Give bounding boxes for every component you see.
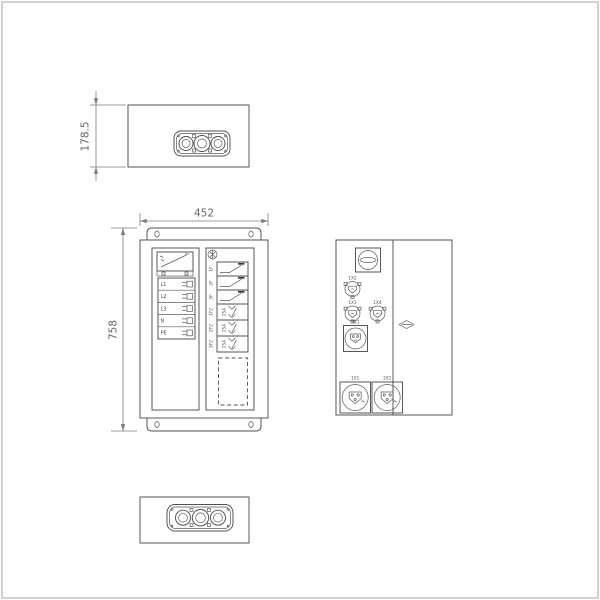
breaker-label: 1F [209,266,215,272]
gland-plate-outline [167,505,233,532]
screw-icon [185,272,188,275]
terminal-connector-icon [182,330,193,336]
arrowhead-icon [121,424,125,431]
socket-label: 1X4 [373,300,382,305]
breaker-symbol-icon: 25A [222,306,237,318]
socket-pin-icon [389,394,391,396]
terminal-block: L1 L2 L3 N [158,278,195,339]
mid-socket: 3X1 [344,320,368,352]
screw-icon [171,509,173,511]
mounting-hole [249,231,253,237]
screw-icon [227,509,229,511]
screw-icon [227,525,229,527]
gland-hole-left [179,137,193,151]
terminal-label: L2 [161,294,167,300]
breaker-label: 2F [209,280,215,286]
meter-needle [161,255,187,267]
mounting-flange-bottom [147,418,261,431]
arrowhead-icon [121,228,125,235]
switch-symbol-icon [220,292,245,301]
gland-hole-left-inner [182,140,190,148]
socket-pin-icon [383,394,385,396]
socket-face-icon [351,334,361,343]
terminal-connector-icon [182,318,193,324]
voltmeter [157,252,193,276]
socket-face-icon [349,286,357,293]
gland-hole-right [211,510,226,525]
arrowhead-icon [261,219,268,223]
gland-hole-right-inner [214,513,223,522]
screw-icon [193,149,196,152]
socket-face-icon [374,311,382,318]
socket-pin-icon [357,394,359,396]
terminal-connector-icon [182,293,193,299]
cable-gland-plate-top [174,131,230,156]
breaker-label: 2F2 [209,324,215,332]
small-socket: 1X2 [344,276,361,299]
front-view: 452 758 [108,208,269,432]
switch-handle-icon [360,257,376,262]
socket-ear-icon [351,295,354,298]
door-handle-icon [399,321,414,329]
screw-icon [178,150,180,152]
gland-hole-middle-inner [198,139,207,148]
dimension-depth: 178.5 [80,91,127,181]
socket-ear-icon [376,320,379,323]
screw-icon [190,509,193,512]
breaker-symbol-icon: 25A [222,322,237,334]
terminal-label: L1 [161,282,167,288]
dimension-depth-value: 178.5 [80,121,92,151]
socket-label: 1X1 [351,376,360,381]
dimension-width-value: 452 [194,208,214,220]
screw-icon [208,509,211,512]
socket-label: 2X1 [383,376,392,381]
terminal-row: L1 [161,281,193,288]
arrowhead-icon [140,219,147,223]
breaker-panel: 1F 2F 3F 1F2 2F2 3F2 25A [209,262,249,352]
terminal-row: N [161,318,193,325]
socket-pin-icon [386,398,388,400]
arrowhead-icon [94,98,98,105]
terminal-label: PE [161,331,167,337]
socket-pin-icon [357,336,359,338]
socket-face-icon [349,311,357,318]
top-view: 178.5 [80,91,250,181]
drawing-canvas: 178.5 452 758 [0,0,600,600]
terminal-connector-icon [182,281,193,287]
dimension-height-value: 758 [108,320,120,340]
breaker-rating: 25A [222,324,227,332]
breaker-rating: 25A [222,340,227,348]
top-view-outline [128,105,249,167]
screw-icon [190,524,193,527]
earth-symbol-icon [208,250,217,259]
socket-pin-icon [354,398,356,400]
mounting-hole [155,422,159,428]
image-border [2,2,598,598]
dimension-height: 758 [108,228,138,431]
screw-icon [193,135,196,138]
socket-face-icon [349,392,361,404]
terminal-connector-icon [182,306,193,312]
breaker-label: 1F2 [209,308,215,316]
dimension-width: 452 [140,208,268,227]
screw-icon [208,524,211,527]
breaker-label: 3F [209,294,215,300]
gland-hole-left [176,510,191,525]
main-switch [356,248,381,272]
terminal-row: L2 [161,293,193,300]
screw-icon [178,135,180,137]
gland-hole-right-inner [214,140,222,148]
gland-hole-middle-inner [196,513,206,523]
screw-icon [162,272,165,275]
socket-label: 3X1 [351,320,360,325]
switch-symbol-icon [220,278,245,287]
side-view-outline [336,240,452,415]
socket-pin-icon [351,394,353,396]
breaker-rating: 25A [222,308,227,316]
mounting-flange-top [147,228,261,240]
screw-icon [171,525,173,527]
cable-gland-plate-bottom [167,505,233,532]
side-view: 1X2 1X3 1X4 3X1 [336,240,452,415]
reserved-area [219,358,248,405]
front-enclosure-outline [140,240,268,418]
socket-face-icon [381,392,393,404]
terminal-row: L3 [161,306,193,313]
gland-hole-left-inner [179,513,188,522]
breaker-label: 3F2 [209,340,215,348]
gland-hole-middle [194,136,210,152]
terminal-row: PE [161,330,193,337]
arrowhead-icon [94,167,98,174]
mounting-hole [155,231,159,237]
screw-icon [225,150,227,152]
small-socket: 1X4 [369,300,386,323]
bottom-view [140,497,249,543]
gland-plate-outline [174,131,230,156]
mounting-hole [249,422,253,428]
gland-hole-right [211,137,225,151]
large-socket: 1X1 [340,376,371,414]
terminal-label: L3 [161,306,167,312]
terminal-label: N [161,319,165,325]
technical-drawing: 178.5 452 758 [0,0,600,600]
screw-icon [225,135,227,137]
breaker-symbol-icon: 25A [222,338,237,350]
screw-icon [209,135,212,138]
socket-pin-icon [352,336,354,338]
socket-label: 1X2 [348,276,357,281]
switch-symbol-icon [220,264,245,273]
left-panel-column [152,248,199,410]
large-socket: 2X1 [372,376,403,414]
socket-label: 1X3 [348,300,357,305]
gland-hole-middle [192,510,208,526]
screw-icon [209,149,212,152]
